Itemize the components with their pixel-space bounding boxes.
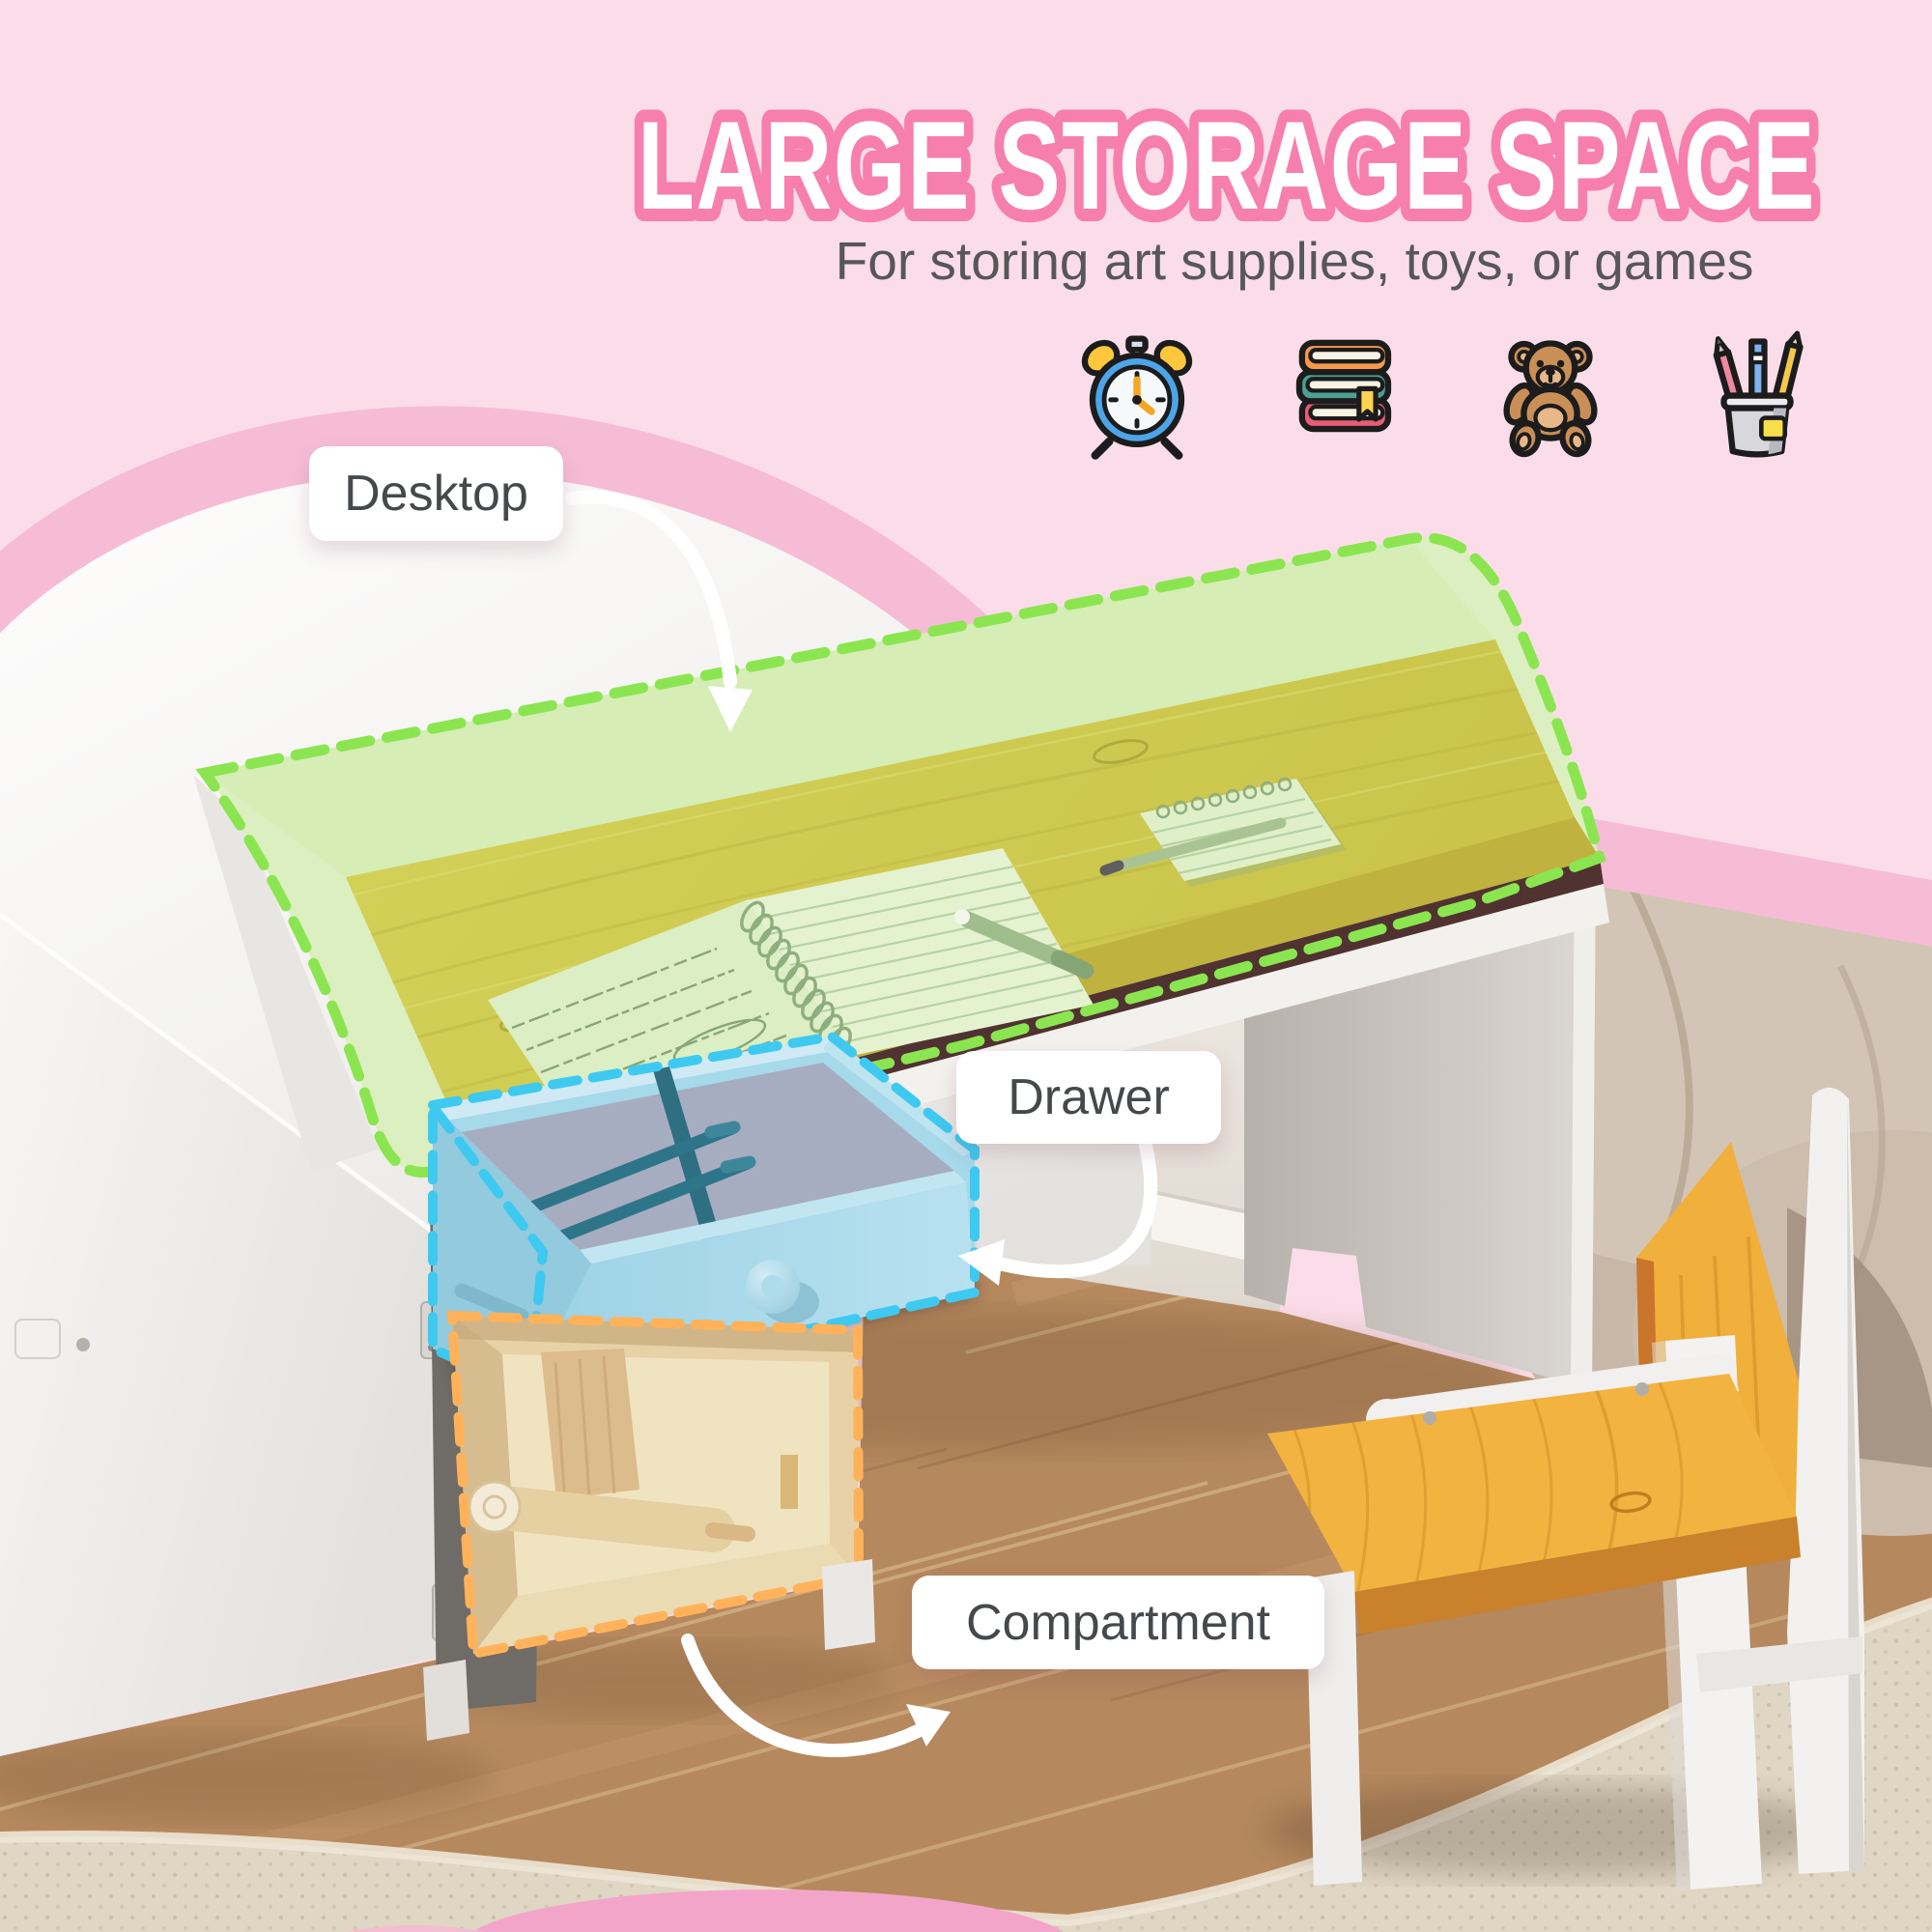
- teddy-bear-icon: [1484, 330, 1617, 464]
- callout-drawer-label: Drawer: [1008, 1068, 1170, 1126]
- paper-roll: [495, 1507, 713, 1530]
- product-infographic: LARGE STORAGE SPACE For storing art supp…: [0, 0, 1932, 1932]
- callout-desktop: Desktop: [309, 446, 563, 541]
- page-title: LARGE STORAGE SPACE: [638, 95, 1816, 236]
- callout-compartment-label: Compartment: [966, 1594, 1270, 1652]
- subtitle: For storing art supplies, toys, or games: [763, 230, 1826, 292]
- desk-leg: [423, 1660, 469, 1741]
- books-stack-icon: [1277, 330, 1410, 464]
- door-bracket: [15, 1320, 60, 1358]
- callout-compartment: Compartment: [912, 1576, 1324, 1669]
- compartment-divider: [781, 1455, 798, 1509]
- callout-desktop-label: Desktop: [344, 465, 528, 523]
- desk-leg: [822, 1559, 875, 1650]
- alarm-clock-icon: [1070, 330, 1204, 464]
- pencil-cup-icon: [1690, 330, 1824, 464]
- category-icons-row: [1070, 330, 1824, 464]
- callout-drawer: Drawer: [956, 1051, 1221, 1144]
